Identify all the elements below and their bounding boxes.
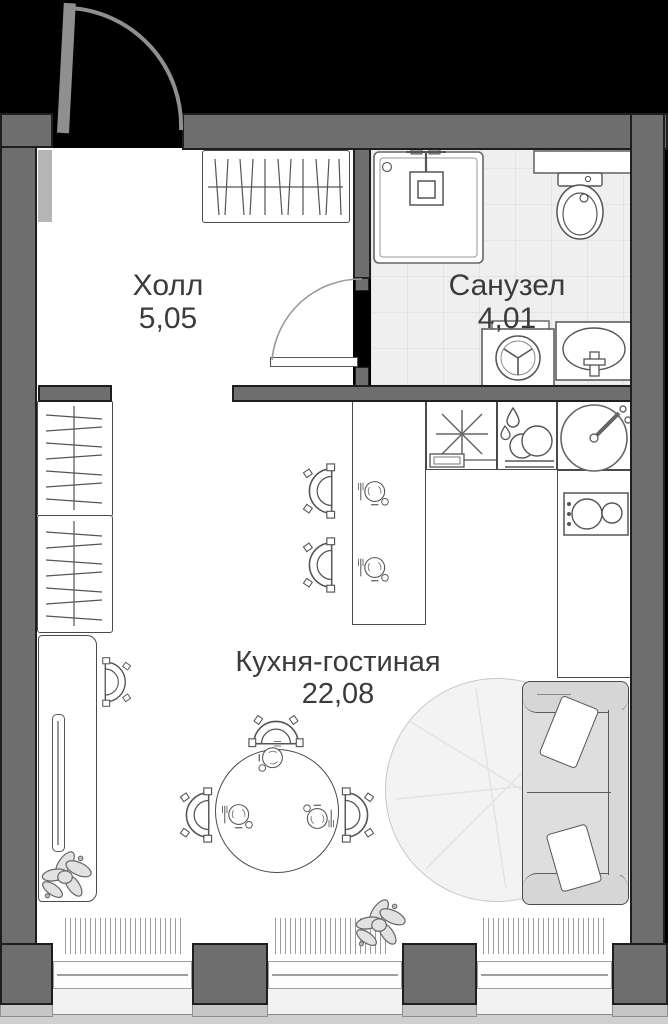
floor-plan: Холл 5,05 Санузел 4,01 Кухня-гостиная 22… — [0, 0, 668, 1024]
bathroom-door-arc — [0, 0, 400, 400]
pier-footer — [192, 1003, 268, 1017]
room-label-bathroom: Санузел 4,01 — [397, 269, 617, 335]
room-area: 22,08 — [187, 678, 489, 710]
window-glass-line — [57, 974, 188, 976]
place-setting — [296, 795, 340, 839]
place-setting — [216, 794, 260, 838]
sofa-crease — [537, 694, 571, 695]
room-area: 5,05 — [58, 302, 278, 335]
pier-footer — [0, 1003, 53, 1017]
wardrobe-lower — [37, 515, 113, 633]
armchair — [88, 656, 140, 708]
room-name: Санузел — [449, 269, 566, 302]
wall-right — [630, 113, 665, 946]
bar-stool — [293, 536, 351, 594]
bar-stool — [293, 462, 351, 520]
wardrobe-upper — [37, 400, 113, 517]
room-name: Холл — [133, 269, 204, 302]
room-name: Кухня-гостиная — [235, 646, 440, 678]
tv — [52, 714, 65, 852]
counter-handle — [428, 452, 498, 470]
bottom-edge — [0, 1014, 668, 1024]
place-setting — [249, 735, 293, 779]
wall-pier — [0, 943, 53, 1005]
hanger-rail-icon — [38, 401, 111, 515]
pier-footer — [402, 1003, 477, 1017]
pier-footer — [612, 1003, 668, 1017]
toilet — [530, 148, 636, 248]
place-setting — [352, 471, 396, 515]
stove — [560, 488, 632, 538]
sofa-seat-line — [527, 792, 611, 793]
wall-pier — [612, 943, 668, 1005]
dishwasher-sink-icon — [497, 400, 557, 470]
window-ext-strip — [0, 986, 668, 1016]
radiator — [483, 918, 605, 954]
window-glass-line — [481, 974, 608, 976]
plant — [351, 896, 405, 950]
sofa — [522, 681, 629, 905]
sofa-backrest — [608, 710, 628, 875]
room-area: 4,01 — [397, 302, 617, 335]
hanger-rail-icon — [38, 516, 111, 631]
wall-pier — [402, 943, 477, 1005]
plant — [37, 848, 91, 902]
wall-pier — [192, 943, 268, 1005]
radiator — [65, 918, 182, 954]
room-label-kitchen-living: Кухня-гостиная 22,08 — [187, 646, 489, 710]
place-setting — [352, 547, 396, 591]
window-glass-line — [272, 974, 398, 976]
kitchen-sink-icon — [557, 400, 632, 472]
room-label-hall: Холл 5,05 — [58, 269, 278, 335]
